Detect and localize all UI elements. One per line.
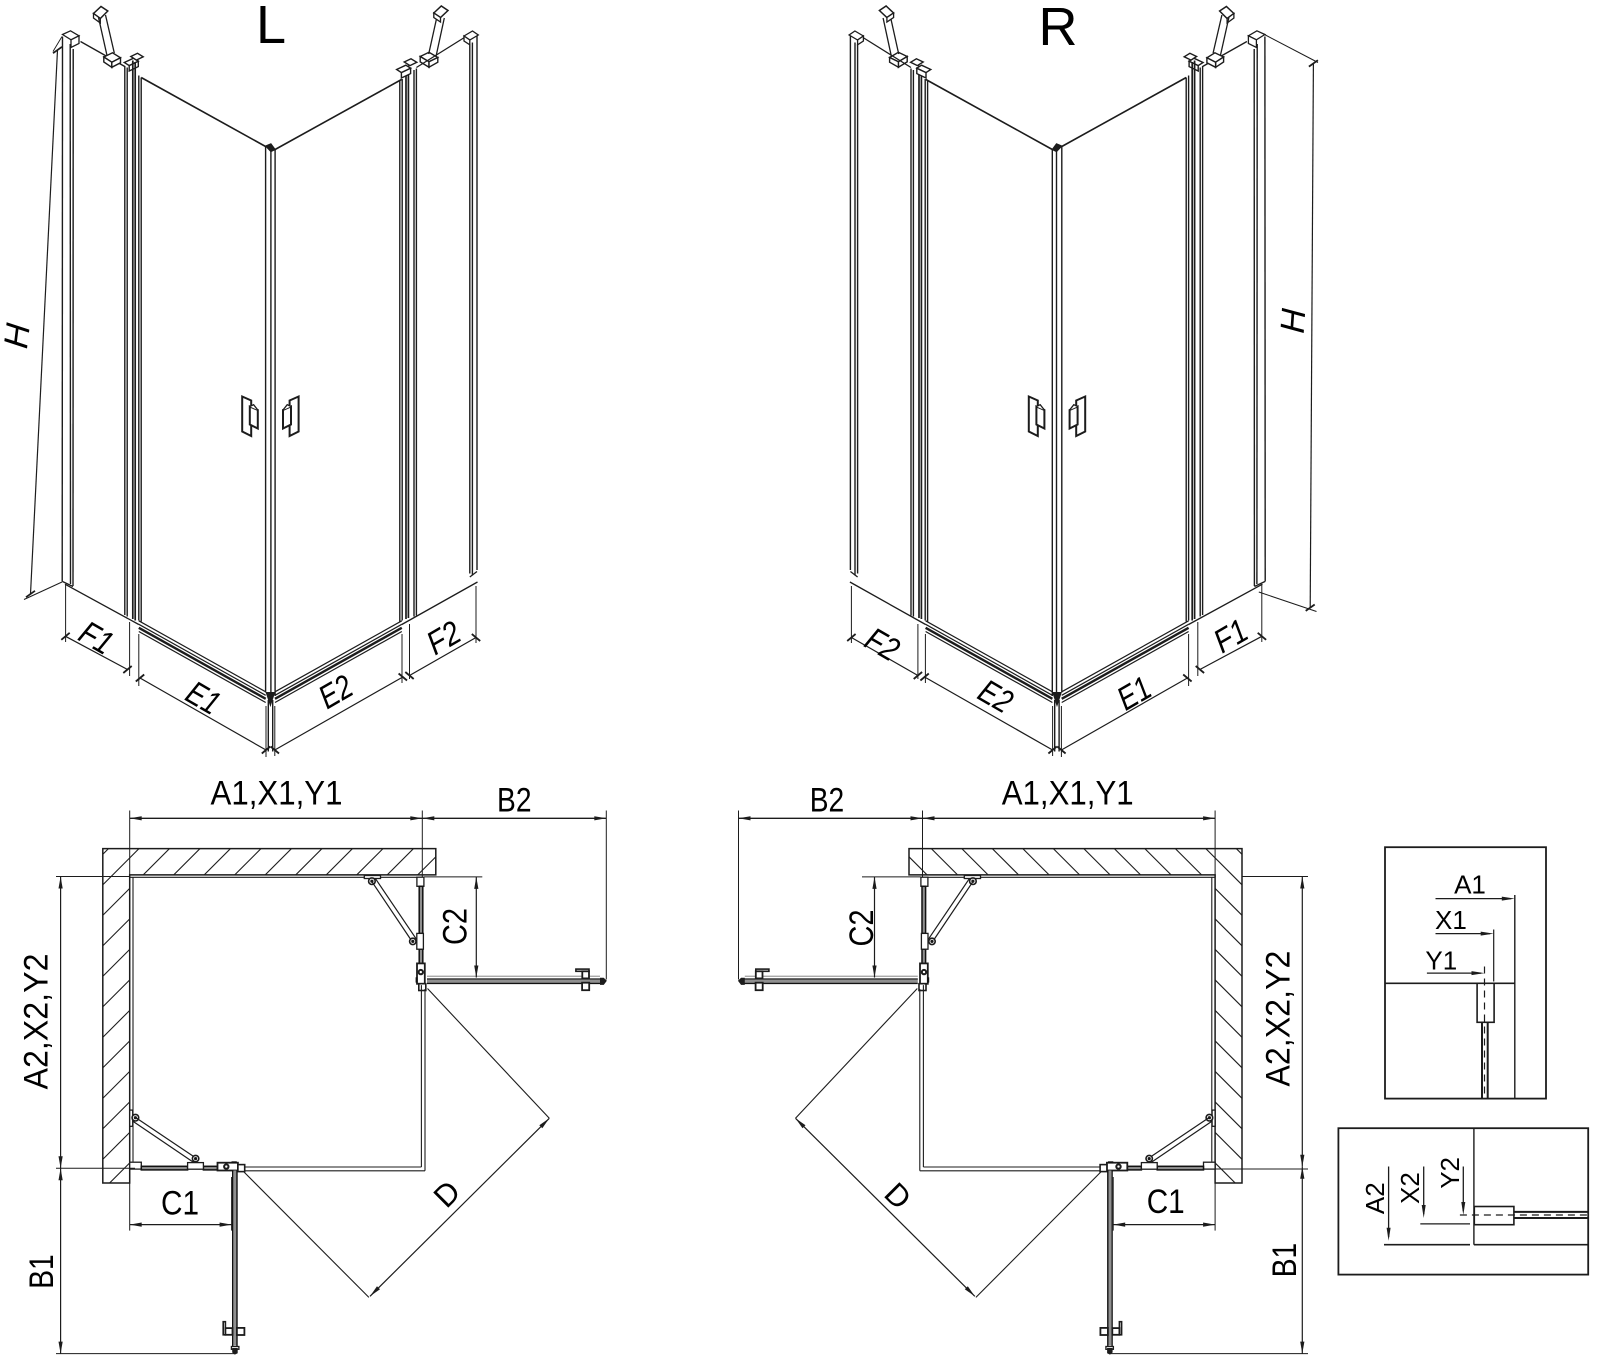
- svg-text:A1,X1,Y1: A1,X1,Y1: [1002, 775, 1134, 813]
- svg-text:B1: B1: [1266, 1243, 1304, 1278]
- svg-text:X2: X2: [1395, 1172, 1425, 1204]
- svg-text:C2: C2: [843, 910, 881, 947]
- svg-text:C2: C2: [437, 908, 475, 945]
- svg-text:A1: A1: [1454, 870, 1486, 900]
- svg-text:Y2: Y2: [1435, 1157, 1465, 1189]
- svg-text:R: R: [1039, 0, 1078, 57]
- svg-text:C1: C1: [1147, 1183, 1185, 1221]
- svg-text:H: H: [1274, 307, 1314, 335]
- svg-text:A2,X2,Y2: A2,X2,Y2: [1259, 951, 1297, 1087]
- svg-text:C1: C1: [161, 1185, 199, 1223]
- svg-text:X1: X1: [1435, 905, 1467, 935]
- svg-text:B2: B2: [497, 782, 532, 820]
- svg-text:B1: B1: [23, 1254, 61, 1289]
- svg-text:A1,X1,Y1: A1,X1,Y1: [211, 775, 343, 813]
- svg-text:Y1: Y1: [1425, 945, 1457, 975]
- svg-text:H: H: [0, 321, 38, 350]
- svg-text:A2: A2: [1360, 1182, 1390, 1214]
- svg-text:L: L: [256, 0, 286, 55]
- svg-text:B2: B2: [810, 782, 845, 820]
- svg-text:A2,X2,Y2: A2,X2,Y2: [18, 954, 56, 1090]
